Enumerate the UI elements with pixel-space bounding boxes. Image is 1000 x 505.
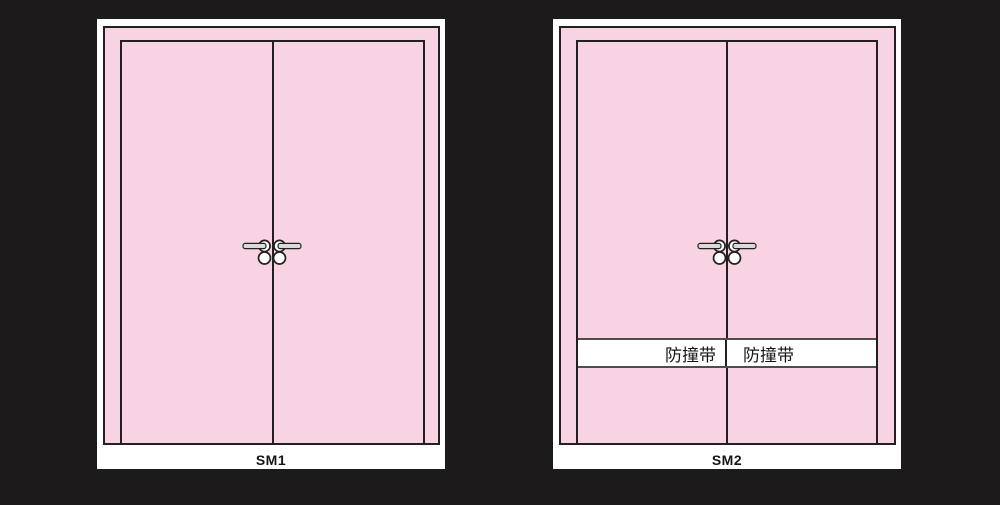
band-label-left: 防撞带 xyxy=(578,340,727,366)
door-lever-handle-icon xyxy=(698,240,756,251)
door-handle-icon xyxy=(240,230,304,276)
door-elevation-sm2: 防撞带 防撞带 SM2 xyxy=(553,19,901,469)
band-label-right: 防撞带 xyxy=(727,340,876,366)
page-background: { "colors": { "background": "#1C1A1A", "… xyxy=(0,0,1000,505)
door-label: SM2 xyxy=(553,452,901,468)
door-elevation-sm1: SM1 xyxy=(97,19,445,469)
lock-cylinder-icon xyxy=(714,252,741,264)
door-lever-handle-icon xyxy=(243,240,301,251)
lock-cylinder-icon xyxy=(259,252,286,264)
door-label: SM1 xyxy=(97,452,445,468)
door-handle-icon xyxy=(695,230,759,276)
anti-collision-band: 防撞带 防撞带 xyxy=(578,338,876,368)
